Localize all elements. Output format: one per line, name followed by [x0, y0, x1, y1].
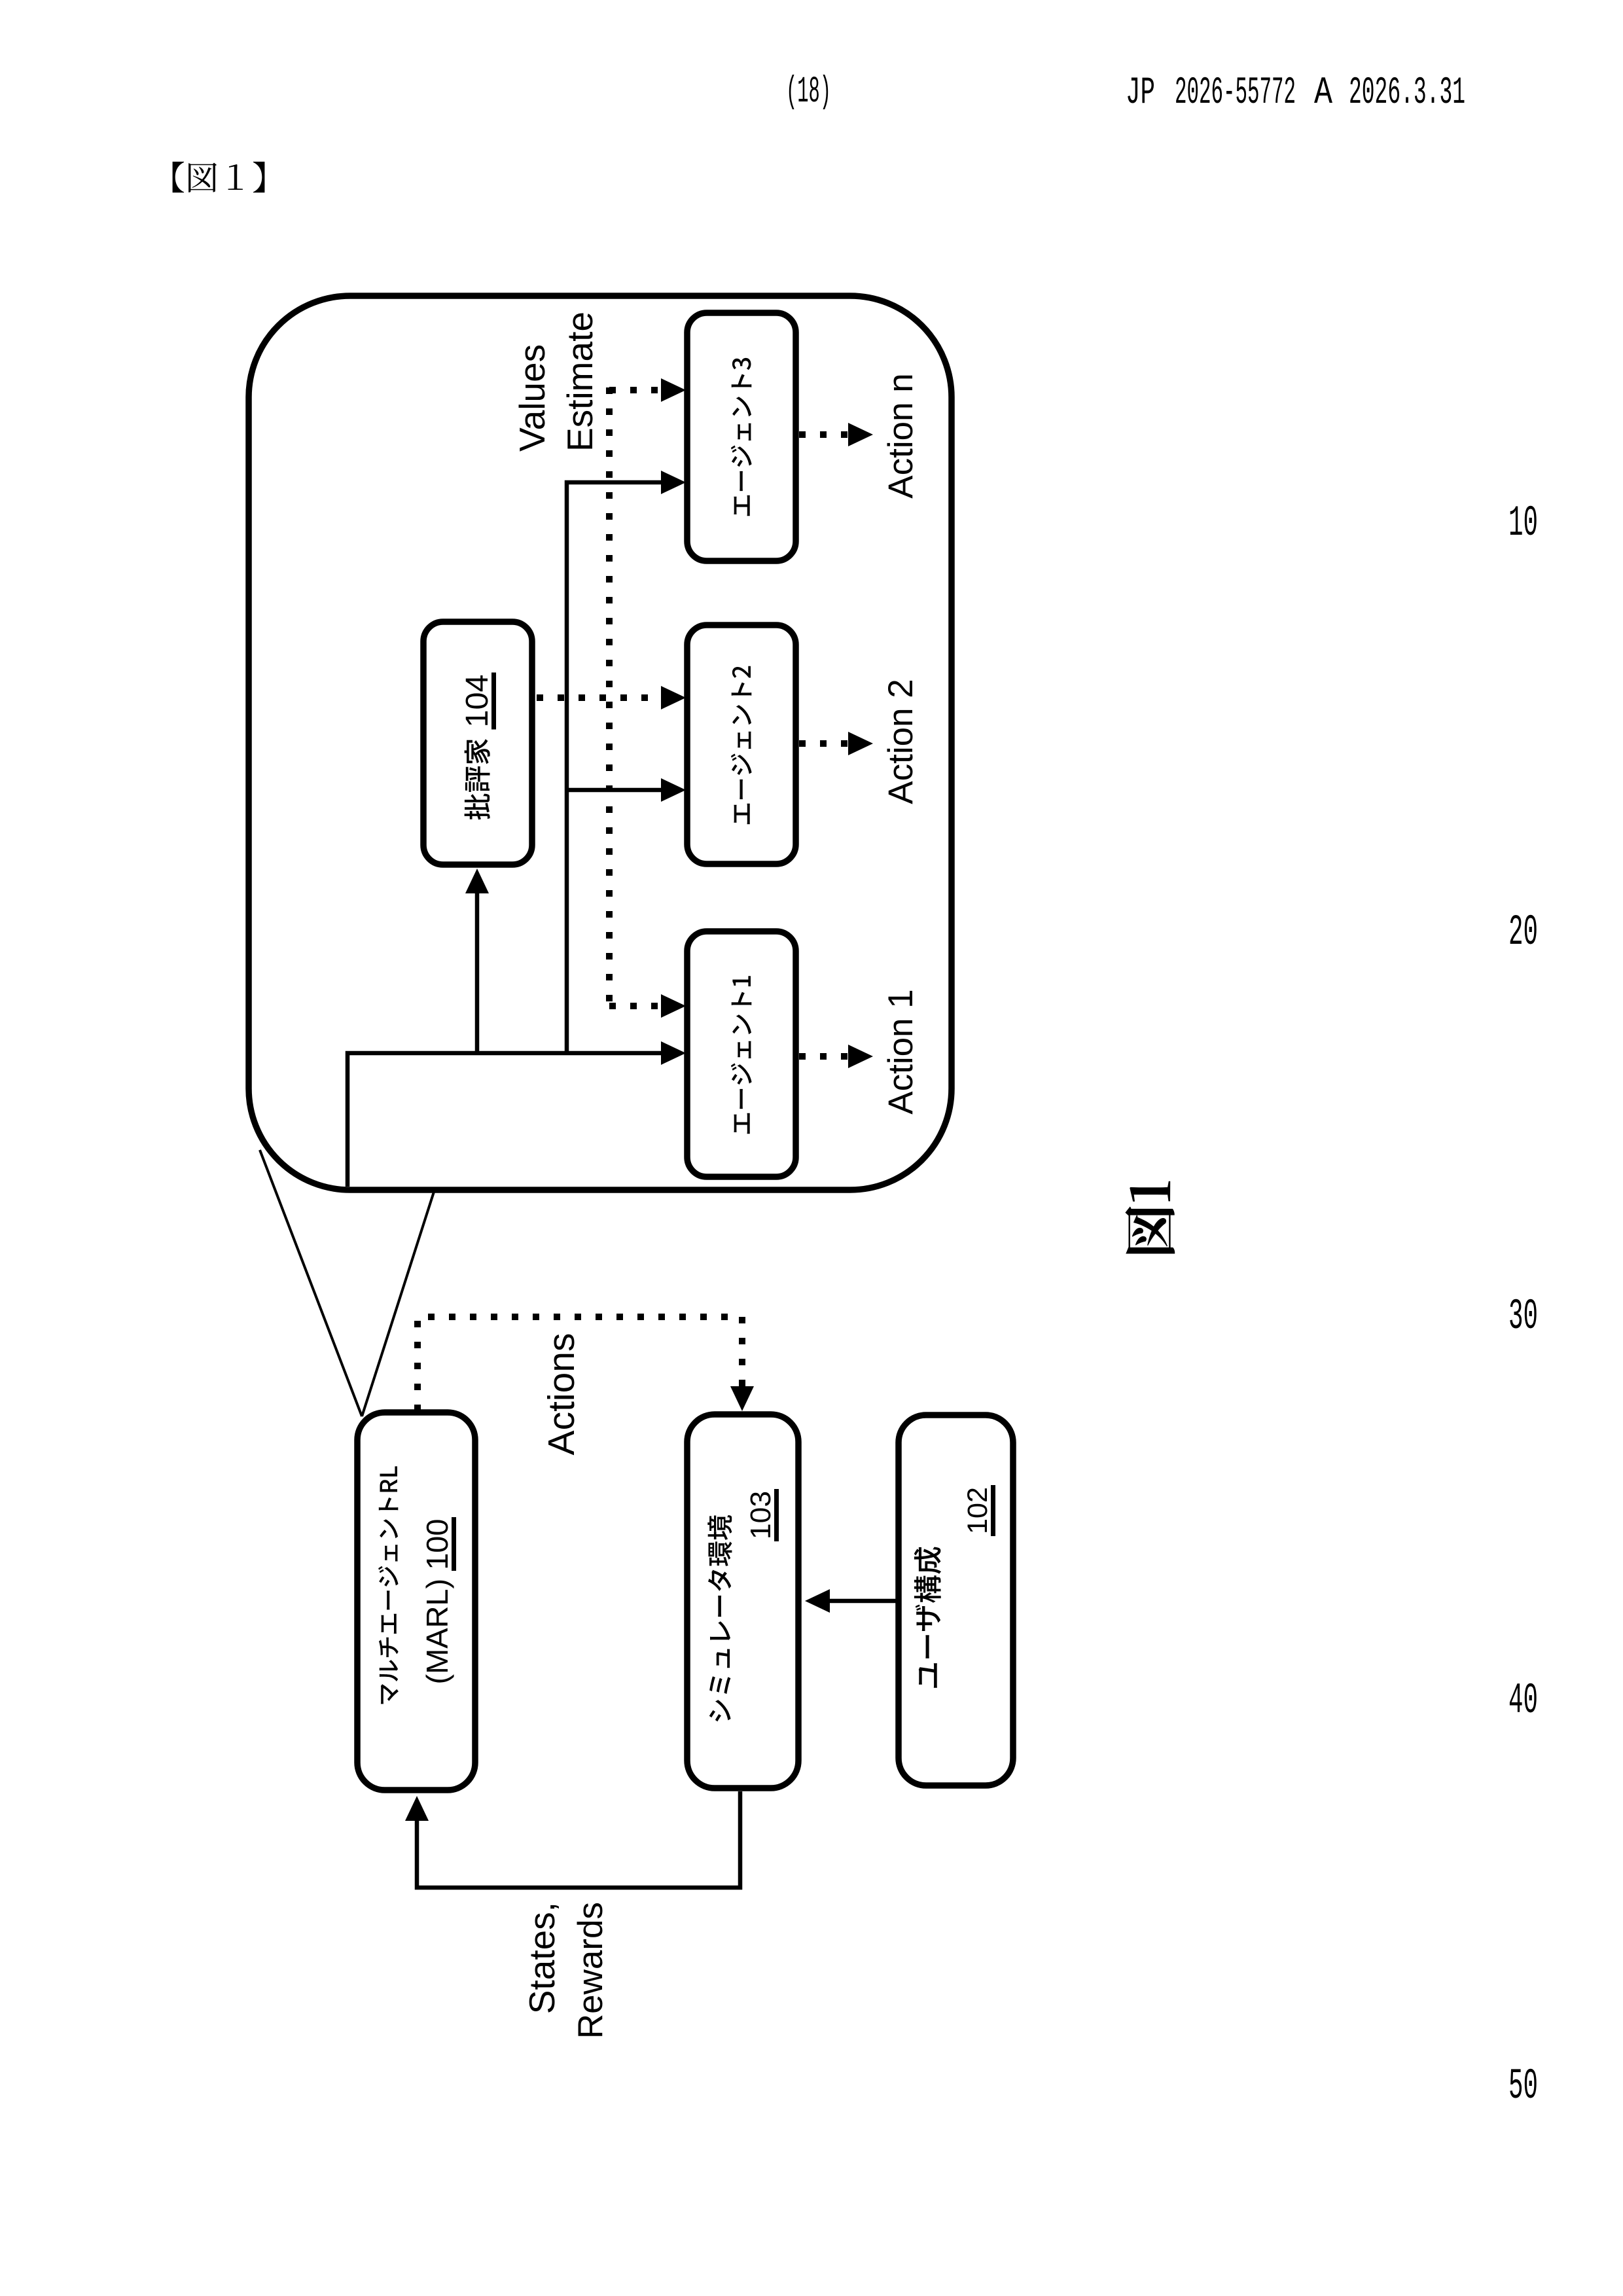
svg-text:40: 40	[1508, 1676, 1538, 1725]
svg-text:10: 10	[1508, 499, 1538, 548]
svg-text:Values: Values	[512, 344, 552, 452]
svg-text:Estimate: Estimate	[560, 312, 600, 452]
svg-text:Action n: Action n	[882, 373, 920, 499]
svg-text:20: 20	[1508, 908, 1538, 957]
svg-text:A: A	[1314, 72, 1332, 115]
svg-text:2026.3.31: 2026.3.31	[1349, 72, 1465, 115]
svg-text:30: 30	[1508, 1292, 1538, 1341]
svg-text:States,: States,	[522, 1902, 562, 2014]
svg-text:2026-55772: 2026-55772	[1175, 72, 1296, 115]
svg-text:Action 2: Action 2	[882, 679, 920, 804]
svg-text:(18): (18)	[786, 71, 831, 113]
svg-text:50: 50	[1508, 2062, 1538, 2111]
svg-text:Actions: Actions	[541, 1333, 582, 1456]
svg-text:102: 102	[962, 1487, 993, 1534]
svg-text:104: 104	[460, 675, 495, 728]
svg-text:Action 1: Action 1	[882, 989, 920, 1115]
svg-text:103: 103	[745, 1491, 777, 1539]
svg-text:JP: JP	[1126, 72, 1155, 115]
svg-text:(MARL) 100: (MARL) 100	[420, 1519, 454, 1685]
svg-text:Rewards: Rewards	[571, 1902, 610, 2039]
